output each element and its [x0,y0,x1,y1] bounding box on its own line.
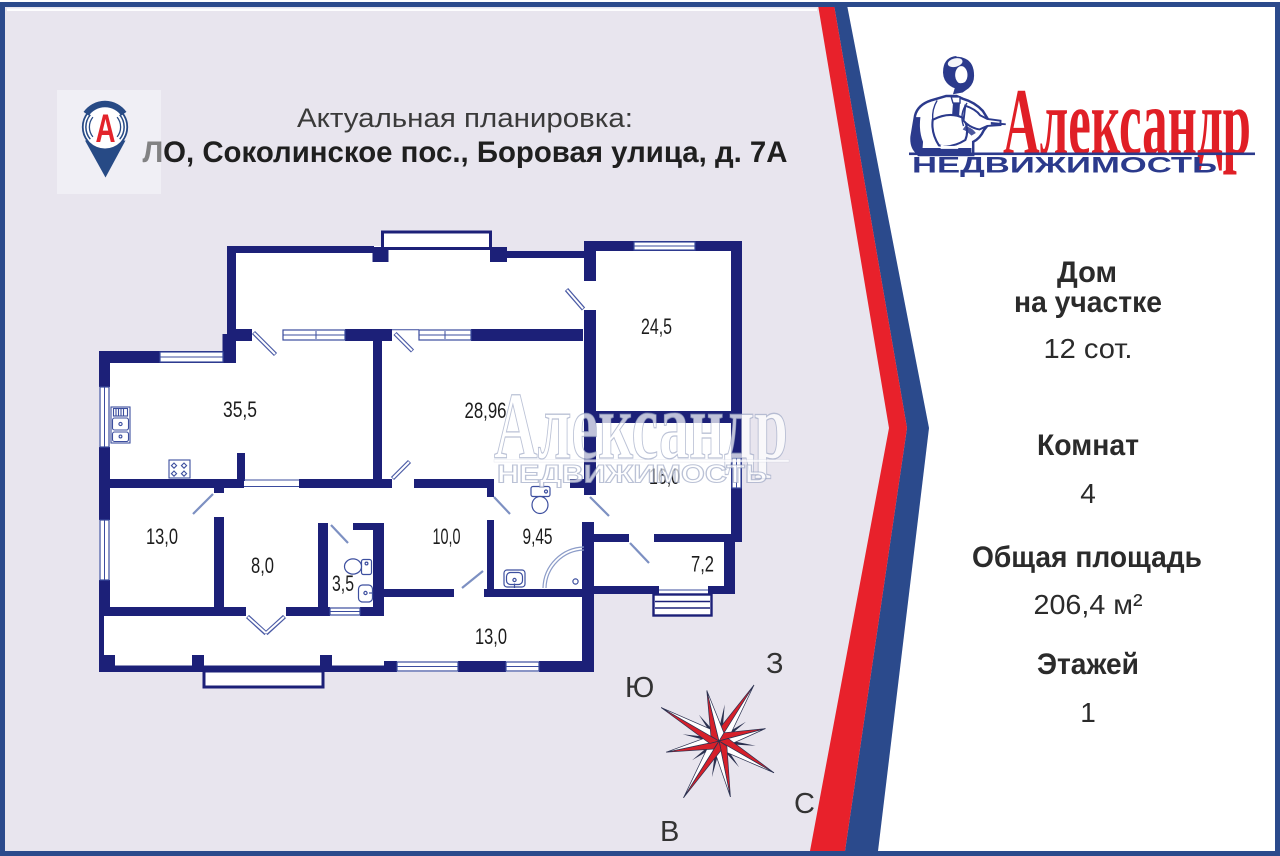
svg-text:В: В [660,816,679,848]
svg-text:7,2: 7,2 [691,552,714,577]
svg-text:на участке: на участке [1014,286,1162,319]
svg-text:Этажей: Этажей [1037,648,1139,681]
svg-text:Общая площадь: Общая площадь [972,541,1202,574]
svg-text:13,0: 13,0 [475,624,507,649]
svg-text:Комнат: Комнат [1037,429,1139,462]
svg-text:12 сот.: 12 сот. [1044,333,1133,364]
svg-text:НЕДВИЖИМОСТЬ: НЕДВИЖИМОСТЬ [497,461,767,489]
svg-text:4: 4 [1080,478,1096,509]
svg-text:24,5: 24,5 [641,314,672,339]
svg-text:НЕДВИЖИМОСТЬ: НЕДВИЖИМОСТЬ [912,153,1217,178]
svg-text:10,0: 10,0 [433,524,461,549]
svg-text:ЛО, Соколинское пос., Боровая: ЛО, Соколинское пос., Боровая улица, д. … [143,136,788,169]
svg-text:206,4 м²: 206,4 м² [1034,589,1143,620]
svg-text:Дом: Дом [1057,256,1117,289]
svg-text:Актуальная планировка:: Актуальная планировка: [297,103,633,133]
svg-text:1: 1 [1080,697,1096,728]
svg-text:З: З [766,648,784,680]
svg-text:3,5: 3,5 [332,571,354,596]
svg-text:Ю: Ю [625,672,654,704]
svg-text:8,0: 8,0 [251,553,274,578]
svg-text:13,0: 13,0 [146,524,178,549]
svg-text:А: А [96,107,116,151]
svg-text:С: С [794,788,815,820]
svg-text:35,5: 35,5 [223,397,257,422]
svg-text:9,45: 9,45 [523,524,553,549]
